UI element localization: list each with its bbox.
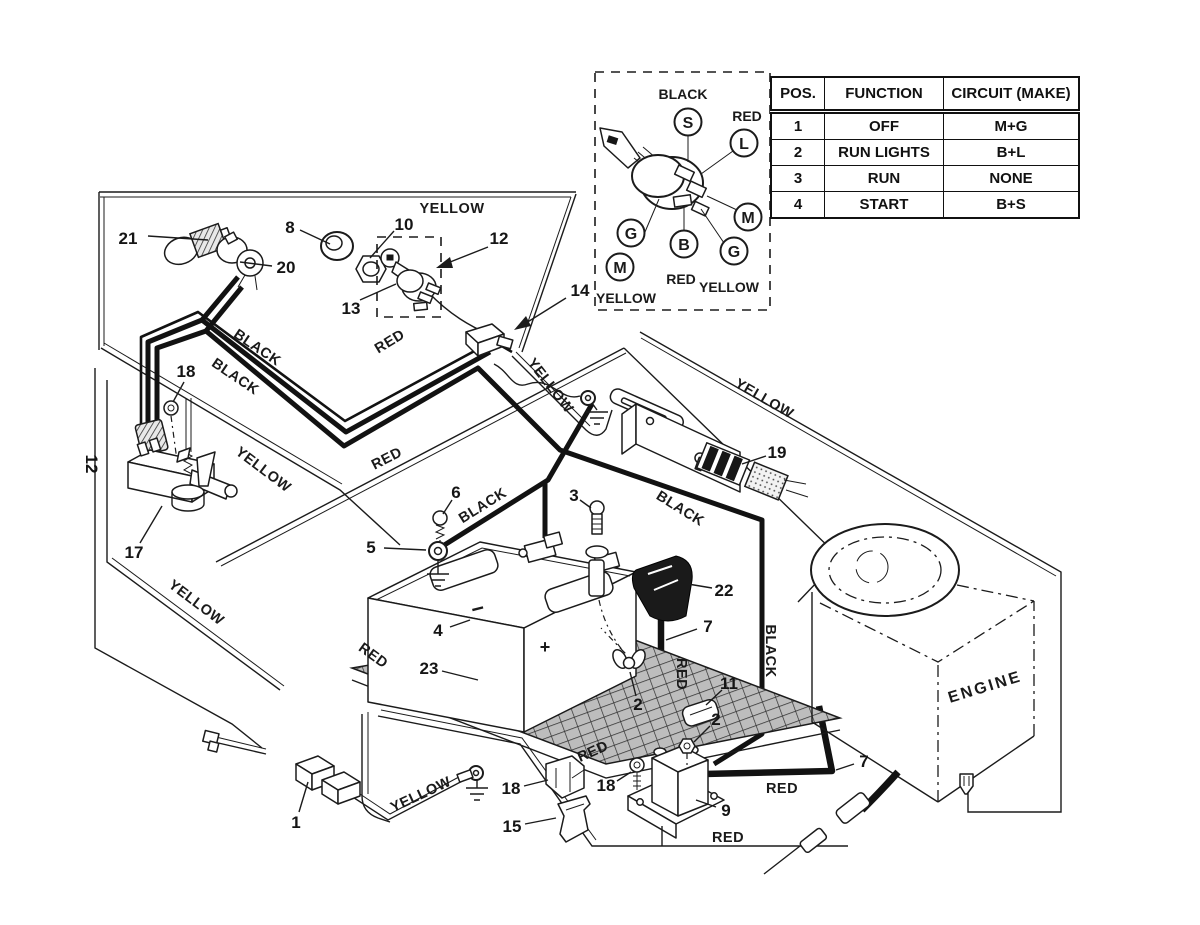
switch-plug [745, 462, 788, 500]
callout-2b: 2 [711, 710, 720, 729]
terminal-l: L [739, 136, 749, 153]
callout-23: 23 [420, 659, 439, 678]
connector-14 [466, 324, 513, 356]
wire-label-yellow-3: YELLOW [165, 577, 227, 629]
callout-18c: 18 [597, 776, 616, 795]
table-header-function: FUNCTION [825, 77, 944, 112]
callout-3: 3 [569, 486, 578, 505]
inset-label-red-top: RED [732, 108, 762, 124]
wire-label-yellow-4: YELLOW [388, 774, 454, 816]
engine-label: ENGINE [946, 668, 1024, 707]
wire-label-yellow-1: YELLOW [419, 201, 484, 217]
terminal-g-right: G [728, 244, 740, 261]
inset-label-yellow-left: YELLOW [596, 290, 657, 306]
table-cell: RUN LIGHTS [825, 140, 944, 166]
interlock-switch [128, 398, 237, 511]
terminal-m-left: M [613, 260, 626, 277]
table-cell: 4 [771, 192, 825, 219]
table-header-circuit: CIRCUIT (MAKE) [944, 77, 1080, 112]
table-row: 1 OFF M+G [771, 112, 1079, 140]
callout-5: 5 [366, 538, 375, 557]
table-cell: NONE [944, 166, 1080, 192]
harness-connector-1 [203, 730, 360, 804]
terminal-b: B [678, 237, 690, 254]
table-header-pos: POS. [771, 77, 825, 112]
terminal-s: S [683, 115, 694, 132]
callout-19: 19 [768, 443, 787, 462]
callout-12b: 12 [82, 455, 101, 474]
callout-18a: 18 [177, 362, 196, 381]
engine-pigtail-connector [960, 774, 973, 794]
table-cell: 2 [771, 140, 825, 166]
terminal-g-left: G [625, 226, 637, 243]
table-cell: 1 [771, 112, 825, 140]
terminal-boot [632, 556, 692, 621]
cable-clip [546, 756, 584, 798]
wire-label-black-5: BLACK [762, 624, 778, 677]
wire-label-yellow-5: YELLOW [524, 355, 577, 416]
callout-13: 13 [342, 299, 361, 318]
table-cell: RUN [825, 166, 944, 192]
engine: ENGINE [811, 524, 1034, 802]
battery-positive-sign: + [540, 637, 551, 657]
wire-label-yellow-6: YELLOW [732, 376, 796, 422]
wire-label-red-6: RED [712, 830, 744, 846]
wire-label-red-1: RED [372, 327, 408, 357]
table-row: 2 RUN LIGHTS B+L [771, 140, 1079, 166]
wire-label-red-7: RED [673, 658, 689, 690]
callout-1: 1 [291, 813, 300, 832]
ring-terminal-1 [457, 770, 473, 782]
table-cell: OFF [825, 112, 944, 140]
callout-21: 21 [119, 229, 138, 248]
table-cell: M+G [944, 112, 1080, 140]
terminal-m-right: M [741, 210, 754, 227]
position-function-table: POS. FUNCTION CIRCUIT (MAKE) 1 OFF M+G 2… [770, 76, 1080, 219]
inset-label-yellow-right: YELLOW [699, 279, 760, 295]
inset-label-red-bottom: RED [666, 271, 696, 287]
table-cell: B+L [944, 140, 1080, 166]
table-cell: 3 [771, 166, 825, 192]
callout-7a: 7 [703, 617, 712, 636]
callout-18b: 18 [502, 779, 521, 798]
callout-17: 17 [125, 543, 144, 562]
table-cell: B+S [944, 192, 1080, 219]
inset-label-black: BLACK [659, 86, 708, 102]
key-switch [377, 237, 441, 317]
callout-11: 11 [720, 674, 738, 693]
callout-8: 8 [285, 218, 294, 237]
wire-label-red-2: RED [369, 445, 405, 474]
callout-15: 15 [503, 817, 522, 836]
callout-10: 10 [395, 215, 414, 234]
bulb-socket [217, 232, 263, 290]
callout-4: 4 [433, 621, 443, 640]
switch-body [632, 147, 709, 216]
callout-7b: 7 [859, 752, 868, 771]
callout-14: 14 [571, 281, 590, 300]
callout-9: 9 [721, 801, 730, 820]
bezel-ring [321, 232, 353, 260]
wire-label-red-5: RED [766, 781, 798, 797]
callout-6: 6 [451, 483, 460, 502]
callout-2a: 2 [633, 695, 642, 714]
wiring-diagram-page: − + [0, 0, 1200, 925]
plunger-switch [697, 443, 750, 485]
callout-12a: 12 [490, 229, 509, 248]
table-row: 3 RUN NONE [771, 166, 1079, 192]
table-row: 4 START B+S [771, 192, 1079, 219]
clip-bracket [558, 796, 590, 842]
ignition-switch-inset: S L M G B G M BLACK RED RED YELLOW YELLO… [595, 72, 770, 310]
key-icon [600, 128, 640, 168]
hex-bolt-18c [630, 758, 644, 790]
wire-label-black-4: BLACK [653, 488, 707, 530]
table-cell: START [825, 192, 944, 219]
callout-22: 22 [715, 581, 734, 600]
callout-20: 20 [277, 258, 296, 277]
wire-label-yellow-2: YELLOW [232, 444, 294, 496]
